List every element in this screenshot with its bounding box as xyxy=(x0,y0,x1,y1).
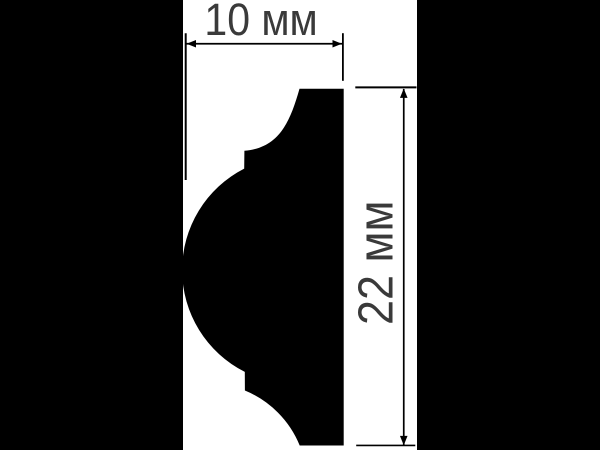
svg-text:10 мм: 10 мм xyxy=(204,0,317,46)
svg-text:22 мм: 22 мм xyxy=(349,201,404,325)
